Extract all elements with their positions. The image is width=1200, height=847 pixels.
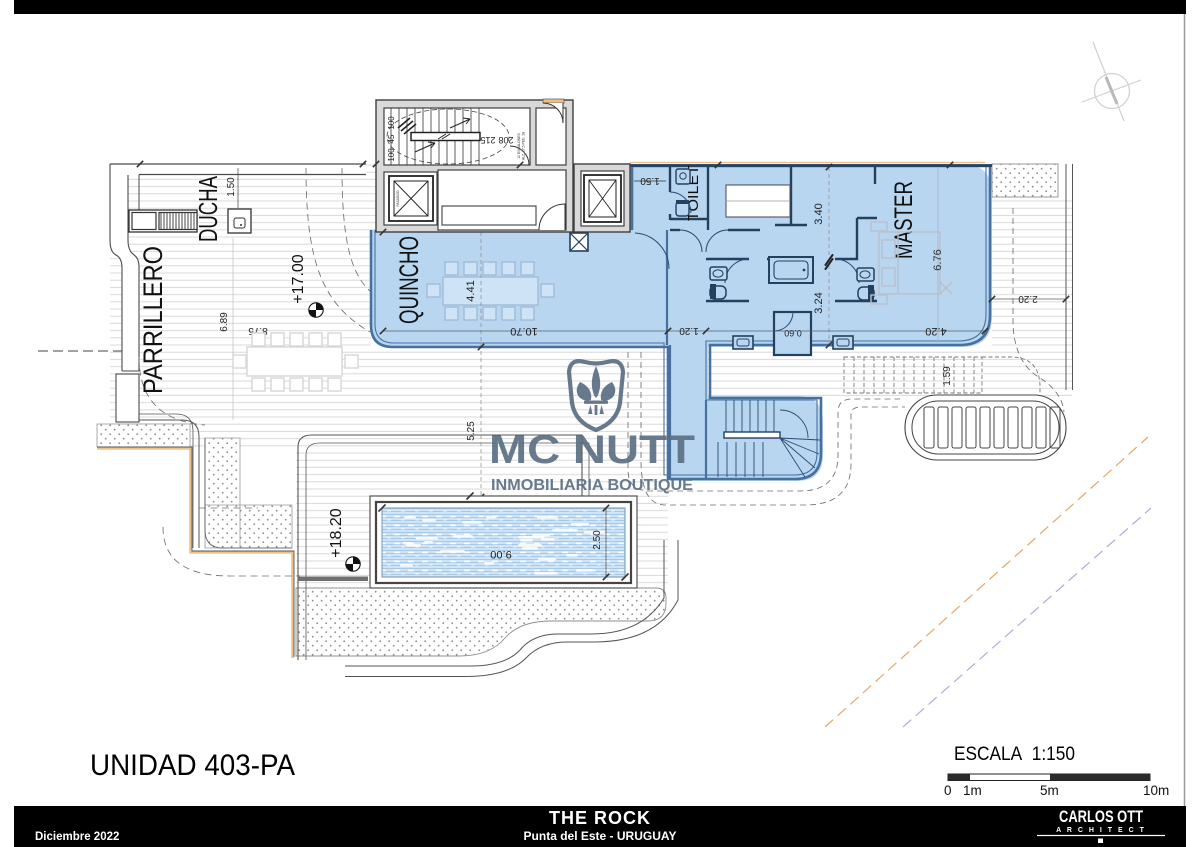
svg-text:9.00: 9.00: [490, 548, 511, 560]
svg-text:215: 215: [480, 135, 495, 145]
svg-text:3.24: 3.24: [813, 292, 825, 313]
svg-text:1.20: 1.20: [679, 325, 699, 336]
svg-text:2.20: 2.20: [1018, 293, 1038, 304]
svg-text:3.40: 3.40: [813, 203, 825, 224]
svg-text:208: 208: [498, 135, 513, 145]
svg-text:INMOBILIARIA BOUTIQUE: INMOBILIARIA BOUTIQUE: [491, 477, 693, 494]
svg-text:4.20: 4.20: [925, 325, 946, 337]
svg-text:10.70: 10.70: [510, 325, 538, 337]
svg-text:5.25: 5.25: [466, 421, 477, 441]
svg-text:0: 0: [944, 783, 952, 798]
svg-text:UNIDAD 403-PA: UNIDAD 403-PA: [90, 749, 295, 782]
svg-text:MASTER: MASTER: [890, 181, 918, 259]
svg-text:100: 100: [387, 116, 396, 130]
svg-text:12 ESCALONES: 12 ESCALONES: [517, 133, 521, 159]
svg-text:PARRILLERO: PARRILLERO: [138, 246, 168, 394]
svg-text:MC NUTT: MC NUTT: [489, 428, 695, 472]
svg-text:6.76: 6.76: [932, 249, 944, 270]
svg-text:4.41: 4.41: [465, 280, 477, 301]
svg-text:45: 45: [387, 134, 396, 143]
svg-text:0.60: 0.60: [784, 328, 802, 338]
svg-text:100: 100: [387, 148, 396, 162]
svg-text:CARLOS OTT: CARLOS OTT: [1059, 808, 1143, 826]
svg-text:1m: 1m: [963, 783, 982, 798]
svg-text:ALZ. 17,5 PED. 28: ALZ. 17,5 PED. 28: [522, 132, 526, 160]
svg-text:1.50: 1.50: [640, 175, 660, 186]
svg-text:1.50: 1.50: [226, 177, 237, 197]
svg-text:5m: 5m: [1040, 783, 1059, 798]
svg-text:A R C H I T E C T: A R C H I T E C T: [1056, 827, 1146, 834]
svg-text:PASADIZO: PASADIZO: [396, 190, 400, 206]
svg-text:THE ROCK: THE ROCK: [549, 808, 651, 828]
svg-text:1.59: 1.59: [942, 366, 953, 386]
svg-text:Punta del Este - URUGUAY: Punta del Este - URUGUAY: [524, 829, 677, 843]
svg-text:+18.20: +18.20: [328, 508, 345, 557]
svg-text:6.89: 6.89: [219, 312, 230, 332]
svg-text:+17.00: +17.00: [290, 254, 307, 303]
svg-text:Diciembre 2022: Diciembre 2022: [35, 831, 119, 843]
svg-text:10m: 10m: [1143, 783, 1169, 798]
svg-text:QUINCHO: QUINCHO: [394, 236, 424, 324]
svg-text:ESCALA 1:150: ESCALA 1:150: [954, 743, 1075, 765]
svg-text:2.50: 2.50: [592, 530, 603, 550]
